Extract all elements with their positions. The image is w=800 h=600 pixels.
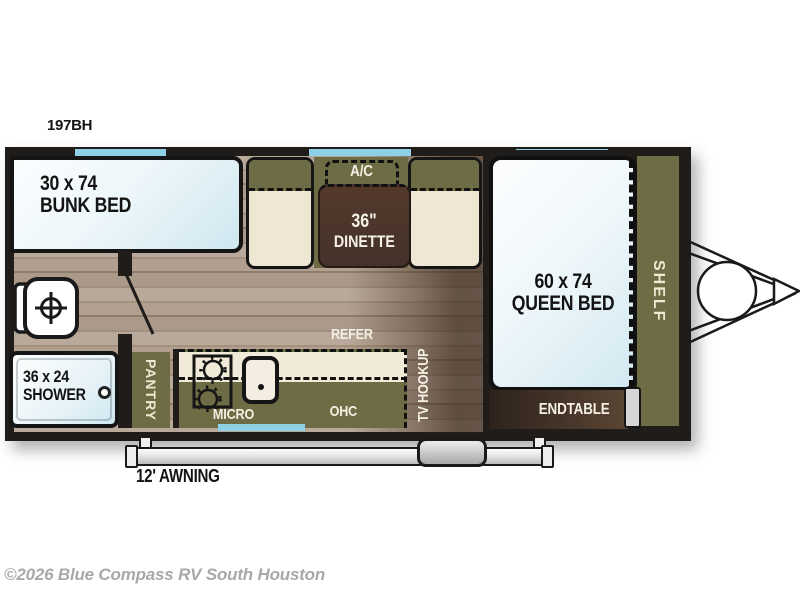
awning-label: 12' AWNING — [136, 466, 236, 487]
shelf-label: SHELF — [649, 260, 667, 322]
shower-drain-icon — [98, 386, 111, 399]
sink-icon — [242, 356, 279, 404]
shelf: SHELF — [637, 156, 679, 426]
queen-name-label: QUEEN BED — [512, 293, 615, 315]
awning-endcap-left — [125, 445, 138, 468]
bed-shelf-divider — [629, 160, 633, 388]
floorplan: 30 x 74 BUNK BED 36 x 24 SHOWER PANTRY — [5, 147, 691, 441]
endtable-label: ENDTABLE — [538, 401, 609, 419]
propane-tank-icon — [698, 262, 756, 320]
bench-backrest — [411, 160, 479, 191]
toilet-icon — [13, 277, 81, 339]
copyright: ©2026 Blue Compass RV South Houston — [4, 565, 325, 585]
entry-step — [417, 438, 487, 467]
shower-label: 36 x 24 SHOWER — [23, 368, 98, 404]
dinette-name-label: DINETTE — [334, 232, 395, 251]
awning-endcap-right — [541, 445, 554, 468]
model-number: 197BH — [47, 117, 92, 134]
microwave-label: MICRO — [201, 406, 265, 423]
queen-bed: 60 x 74 QUEEN BED — [489, 156, 637, 391]
dinette-bench-left — [246, 157, 314, 269]
coupler-icon — [774, 279, 799, 304]
ohc-label: OHC — [315, 403, 371, 420]
window-strip-kitchen — [218, 424, 305, 431]
dinette-bench-right — [408, 157, 482, 269]
awning-tube — [127, 447, 554, 466]
dinette-size-label: 36" — [352, 212, 377, 232]
dinette-table: 36" DINETTE — [318, 184, 411, 268]
endtable: ENDTABLE — [489, 390, 628, 429]
ac-label: A/C — [314, 163, 408, 181]
stove-icon — [189, 354, 237, 412]
tv-hookup-label: TV HOOKUP — [414, 325, 434, 445]
bench-backrest — [249, 160, 311, 191]
queen-size-label: 60 x 74 — [534, 271, 591, 293]
pantry: PANTRY — [132, 352, 170, 428]
endtable-step — [624, 387, 641, 428]
pantry-label: PANTRY — [143, 359, 159, 421]
shower: 36 x 24 SHOWER — [9, 351, 119, 428]
refrigerator-label: REFER — [317, 326, 387, 343]
hitch-a-frame-icon — [686, 228, 800, 356]
